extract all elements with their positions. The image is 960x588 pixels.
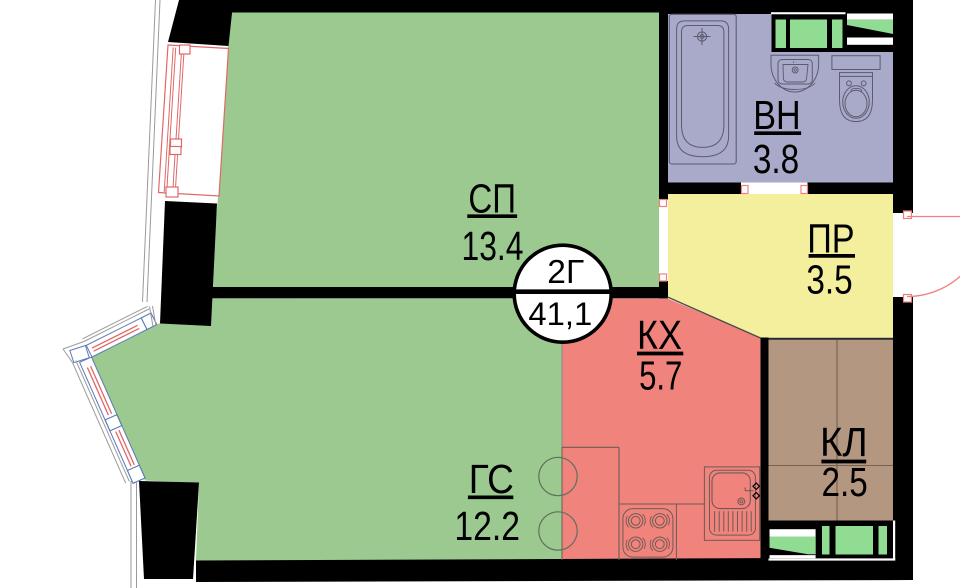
- svg-text:ВН: ВН: [753, 92, 800, 137]
- svg-text:2.5: 2.5: [821, 459, 867, 505]
- svg-text:СП: СП: [468, 176, 516, 221]
- svg-text:13.4: 13.4: [462, 223, 524, 269]
- svg-text:3.8: 3.8: [753, 136, 799, 182]
- svg-text:12.2: 12.2: [454, 503, 520, 549]
- svg-text:2Г: 2Г: [547, 254, 584, 291]
- svg-text:5.7: 5.7: [639, 353, 682, 399]
- svg-text:3.5: 3.5: [806, 256, 852, 302]
- svg-text:41,1: 41,1: [528, 295, 592, 332]
